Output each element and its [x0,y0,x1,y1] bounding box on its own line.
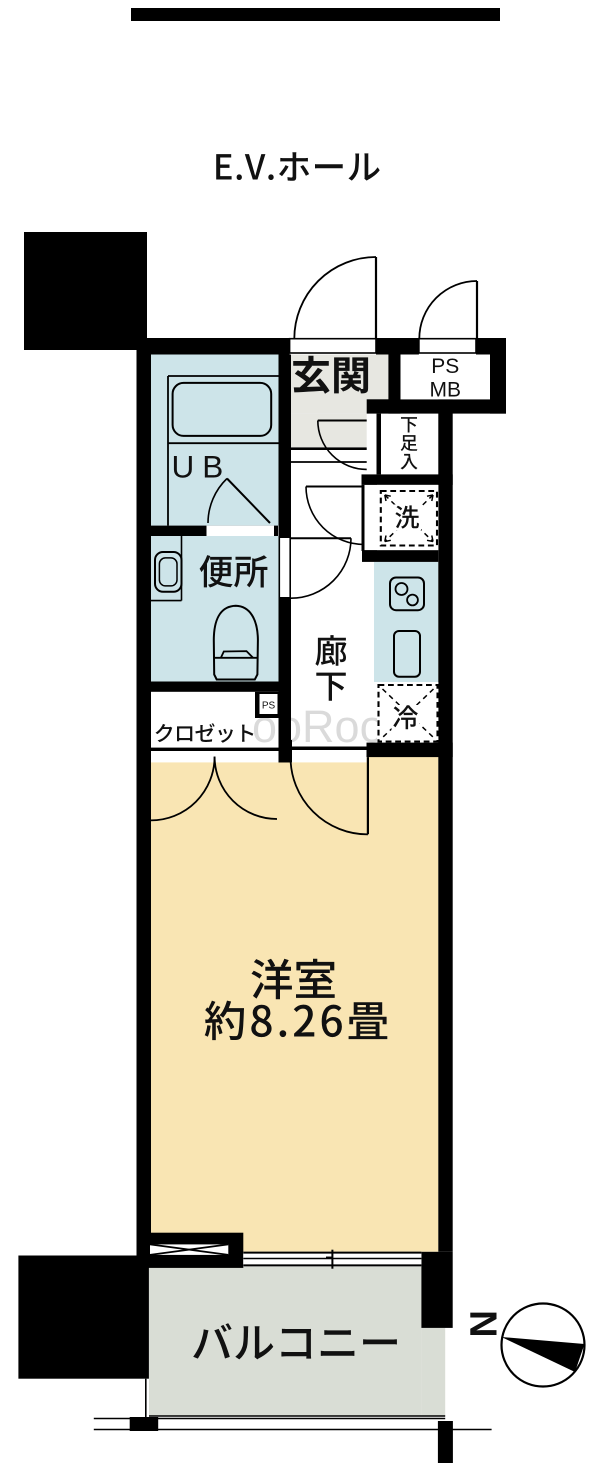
svg-text:MB: MB [430,379,462,402]
svg-text:N: N [464,1310,506,1337]
svg-text:PS: PS [262,701,276,712]
svg-text:PS: PS [431,355,459,378]
svg-text:UB: UB [172,449,232,485]
